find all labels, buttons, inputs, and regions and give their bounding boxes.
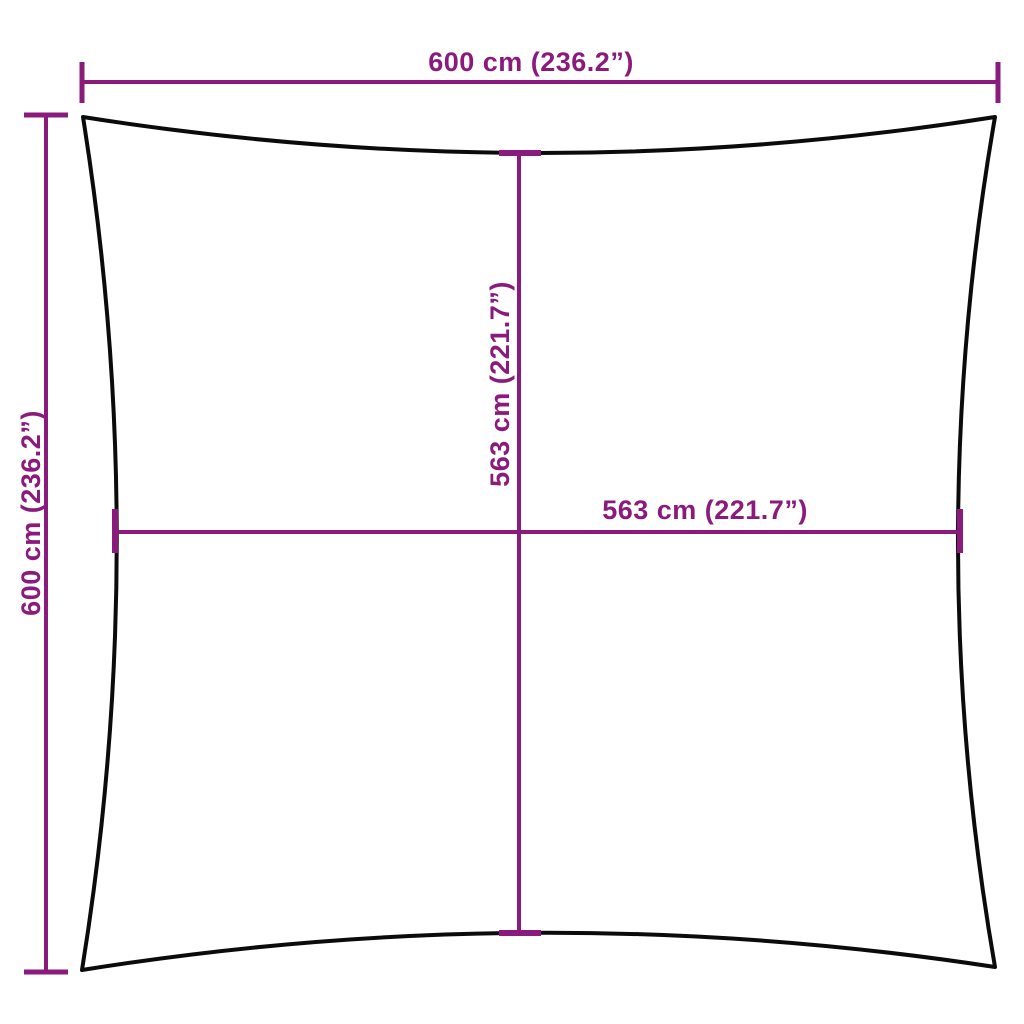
top-dimension-label: 600 cm (236.2”) xyxy=(428,47,634,77)
diagram-canvas: 600 cm (236.2”) 600 cm (236.2”) 563 cm (… xyxy=(0,0,1024,1024)
left-dimension-label: 600 cm (236.2”) xyxy=(16,410,46,616)
left-dimension: 600 cm (236.2”) xyxy=(16,115,68,972)
top-dimension: 600 cm (236.2”) xyxy=(82,47,998,103)
inner-horizontal-dimension-label: 563 cm (221.7”) xyxy=(602,495,808,525)
sail-outline xyxy=(82,117,995,970)
dimension-diagram: 600 cm (236.2”) 600 cm (236.2”) 563 cm (… xyxy=(0,0,1024,1024)
inner-vertical-dimension-label: 563 cm (221.7”) xyxy=(485,281,515,487)
